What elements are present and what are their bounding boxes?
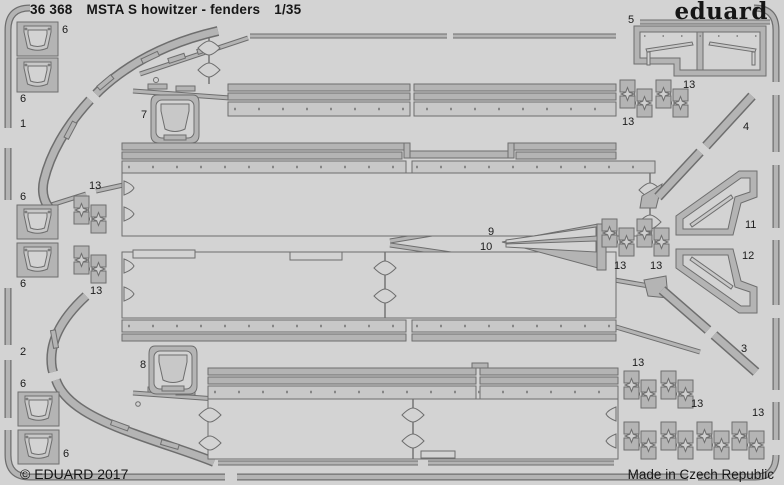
part-label-13: 13 [632, 357, 644, 369]
part-5-panel [634, 26, 766, 76]
part-label-6: 6 [63, 448, 69, 460]
assembly-bottom-fender [199, 363, 618, 459]
part-label-5: 5 [628, 14, 634, 26]
part-label-12: 12 [742, 250, 754, 262]
part-label-6: 6 [20, 191, 26, 203]
part-8-frame [149, 346, 197, 394]
part-label-6: 6 [62, 24, 68, 36]
sheet-scale: 1/35 [274, 2, 301, 17]
fret-artwork [0, 0, 784, 485]
part-label-13: 13 [89, 180, 101, 192]
part-label-13: 13 [683, 79, 695, 91]
part-label-11: 11 [745, 219, 756, 231]
part-label-13: 13 [691, 398, 703, 410]
part-label-6: 6 [20, 93, 26, 105]
part-label-6: 6 [20, 378, 26, 390]
part-label-10: 10 [480, 241, 492, 253]
part-7-frame [151, 95, 199, 143]
part-label-13: 13 [90, 285, 102, 297]
part-label-13: 13 [622, 116, 634, 128]
origin-text: Made in Czech Republic [628, 467, 774, 482]
copyright-text: © EDUARD 2017 [20, 466, 128, 482]
part-label-4: 4 [743, 121, 749, 133]
assembly-top-strips [228, 84, 616, 116]
part-label-7: 7 [141, 109, 147, 121]
sheet-number: 36 368 [30, 2, 73, 17]
part-label-6: 6 [20, 278, 26, 290]
assembly-upper-fender [122, 143, 661, 236]
part-label-8: 8 [140, 359, 146, 371]
brand-logo: eduard [674, 0, 768, 25]
part-label-13: 13 [614, 260, 626, 272]
part-label-13: 13 [752, 407, 764, 419]
pe-fret-sheet: 36 368MSTA S howitzer - fenders1/35 edua… [0, 0, 784, 485]
part-label-13: 13 [650, 260, 662, 272]
part-label-1: 1 [20, 118, 26, 130]
sheet-name: MSTA S howitzer - fenders [87, 2, 261, 17]
part-label-9: 9 [488, 226, 494, 238]
sheet-title: 36 368MSTA S howitzer - fenders1/35 [30, 2, 315, 17]
part-label-3: 3 [741, 343, 747, 355]
part-6-squares [17, 22, 59, 464]
part-label-2: 2 [20, 346, 26, 358]
assembly-lower-fender [122, 250, 616, 341]
